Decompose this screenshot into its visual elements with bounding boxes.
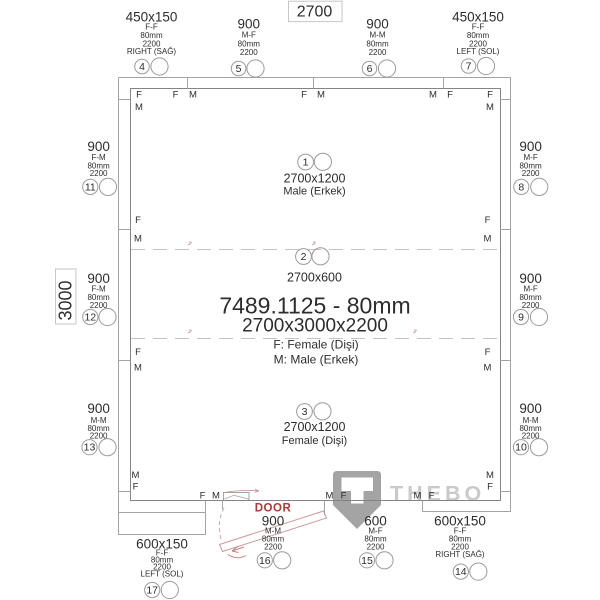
- svg-text:M: M: [484, 363, 492, 374]
- svg-text:LEFT (SOL): LEFT (SOL): [141, 570, 184, 579]
- svg-text:2200: 2200: [369, 48, 387, 57]
- svg-text:M: M: [429, 90, 437, 101]
- svg-text:Female (Dişi): Female (Dişi): [282, 435, 347, 447]
- svg-text:2700x600: 2700x600: [287, 271, 342, 285]
- svg-text:7: 7: [466, 61, 472, 73]
- svg-text:M: M: [484, 234, 492, 245]
- svg-text:M: M: [189, 90, 197, 101]
- svg-text:RIGHT (SAĞ): RIGHT (SAĞ): [127, 47, 177, 56]
- svg-text:8: 8: [518, 181, 524, 193]
- svg-text:12: 12: [84, 312, 96, 324]
- svg-text:M: M: [132, 470, 140, 481]
- svg-text:3000: 3000: [55, 280, 75, 320]
- svg-text:2200: 2200: [367, 543, 385, 552]
- svg-text:M: M: [326, 491, 334, 502]
- svg-text:17: 17: [146, 585, 158, 597]
- svg-text:6: 6: [367, 63, 373, 75]
- svg-text:F: F: [447, 90, 453, 101]
- svg-text:2700: 2700: [297, 4, 333, 21]
- svg-text:F: F: [487, 90, 493, 101]
- svg-text:M: M: [414, 491, 422, 502]
- svg-text:M: M: [486, 102, 494, 113]
- svg-text:M-M: M-M: [370, 31, 386, 40]
- svg-text:M: Male (Erkek): M: Male (Erkek): [274, 353, 359, 367]
- svg-text:F: F: [136, 90, 142, 101]
- svg-text:F: F: [200, 491, 206, 502]
- svg-text:900: 900: [87, 139, 110, 154]
- svg-text:M: M: [135, 102, 143, 113]
- svg-text:13: 13: [84, 442, 96, 454]
- svg-text:9: 9: [518, 312, 524, 324]
- svg-text:4: 4: [139, 61, 145, 73]
- svg-text:11: 11: [85, 181, 96, 193]
- svg-text:F: F: [135, 215, 141, 226]
- svg-text:M: M: [134, 234, 142, 245]
- svg-text:5: 5: [236, 63, 242, 75]
- svg-text:LEFT (SOL): LEFT (SOL): [457, 47, 500, 56]
- svg-text:F: F: [487, 482, 493, 493]
- svg-text:2200: 2200: [264, 543, 282, 552]
- svg-text:2200: 2200: [90, 169, 108, 178]
- svg-text:F: F: [133, 482, 139, 493]
- svg-text:F: F: [173, 90, 179, 101]
- svg-text:900: 900: [87, 401, 110, 416]
- svg-text:2200: 2200: [240, 48, 258, 57]
- svg-text:1: 1: [303, 157, 309, 169]
- svg-text:M: M: [212, 491, 220, 502]
- svg-text:2700x1200: 2700x1200: [284, 420, 346, 434]
- svg-text:Male (Erkek): Male (Erkek): [283, 186, 345, 198]
- svg-text:M-F: M-F: [242, 31, 256, 40]
- svg-text:THEBO: THEBO: [390, 482, 485, 506]
- svg-text:F: F: [341, 491, 347, 502]
- svg-text:M: M: [317, 90, 325, 101]
- svg-text:M: M: [134, 363, 142, 374]
- svg-text:15: 15: [361, 555, 373, 567]
- svg-text:14: 14: [455, 566, 467, 578]
- svg-text:F: F: [485, 347, 491, 358]
- svg-text:900: 900: [366, 17, 389, 32]
- svg-text:900: 900: [238, 17, 261, 32]
- svg-text:F: F: [485, 215, 491, 226]
- svg-text:2700x3000x2200: 2700x3000x2200: [242, 316, 388, 337]
- svg-text:3: 3: [302, 406, 308, 418]
- svg-text:F: Female (Dişi): F: Female (Dişi): [273, 338, 358, 352]
- svg-text:16: 16: [259, 555, 271, 567]
- svg-text:900: 900: [519, 401, 542, 416]
- svg-text:M: M: [486, 470, 494, 481]
- svg-text:2200: 2200: [522, 169, 540, 178]
- svg-text:RIGHT (SAĞ): RIGHT (SAĞ): [435, 550, 485, 559]
- svg-text:10: 10: [515, 442, 527, 454]
- svg-text:F: F: [429, 491, 435, 502]
- svg-text:2700x1200: 2700x1200: [284, 172, 346, 186]
- svg-text:F: F: [135, 347, 141, 358]
- svg-text:900: 900: [519, 139, 542, 154]
- svg-text:F: F: [301, 90, 307, 101]
- svg-text:2: 2: [301, 251, 307, 263]
